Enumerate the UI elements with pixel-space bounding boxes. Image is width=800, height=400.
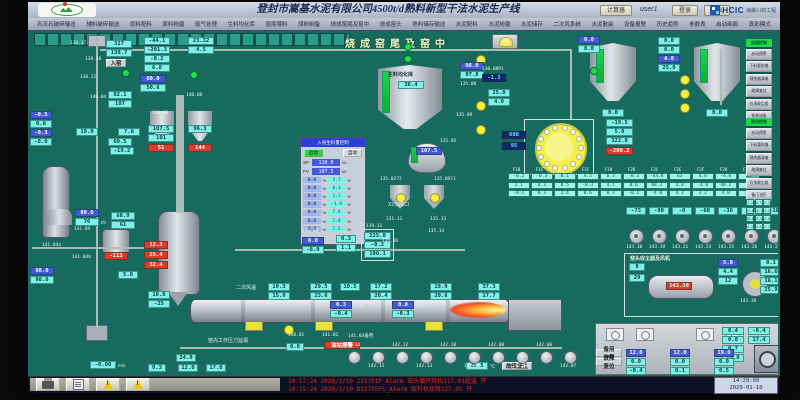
value-box: 23.6: [310, 292, 332, 300]
mini-button[interactable]: 入窑: [106, 59, 126, 67]
value-box[interactable]: 80.0: [75, 209, 99, 217]
grid-cell: -44.8: [646, 173, 668, 180]
equipment-tag: 138.21: [80, 75, 96, 80]
page-title: 烧成窑尾及窑中: [345, 35, 450, 50]
menu-item[interactable]: 烧成窑头: [380, 20, 402, 28]
equipment-tag: 142.13: [416, 364, 432, 369]
value-box: 17.7: [478, 292, 500, 300]
menu-item[interactable]: 设备报警: [624, 20, 646, 28]
unit-label: 门限: [354, 303, 363, 309]
value-box: 19.8: [148, 291, 170, 299]
weighbin-value: 107.5: [416, 147, 442, 155]
alarm-line: 10:17:24 2020/1/10 231701P_Alarm 窑头循环风机1…: [288, 378, 487, 386]
value-box: 29: [629, 274, 645, 282]
value-box: -44.1: [144, 37, 170, 45]
pipe-line: [180, 347, 562, 349]
value-box: 0.0: [714, 358, 734, 366]
pipe-line: [96, 37, 98, 329]
fan-icon[interactable]: [698, 229, 713, 244]
grid-cell: -0.3: [531, 173, 553, 180]
equipment-tag: 138.18: [85, 57, 101, 62]
value-box: 12.3: [144, 241, 168, 249]
menu-item[interactable]: 水泥粉磨: [488, 20, 510, 28]
alarm-summary-button[interactable]: [126, 378, 150, 391]
grid-header: F1B: [513, 167, 520, 172]
value-box: 107: [108, 100, 132, 108]
grid-cell: -0.1: [623, 173, 645, 180]
fan-icon[interactable]: [744, 229, 759, 244]
unit-label: t/h: [101, 220, 106, 225]
feed-panel-row: 0.0%1.1%: [301, 192, 365, 200]
run-indicator-icon: [122, 69, 130, 77]
right-table-cell: 14.0: [755, 215, 763, 222]
motor-icon[interactable]: [540, 351, 553, 364]
equipment-tag: 138.08P1: [482, 67, 504, 72]
group-button[interactable]: 故障复位: [746, 165, 772, 176]
calculator-button[interactable]: 计算器: [600, 5, 632, 16]
value-box: 19.9: [430, 283, 452, 291]
ring-nozzle-icon: [576, 136, 582, 142]
value-box: 17.0: [206, 364, 226, 372]
equipment-tag: 141.09: [74, 227, 90, 232]
value-box: 107.5: [148, 125, 174, 133]
grid-cell: -0.1: [623, 190, 645, 197]
value-box: -113: [104, 252, 128, 260]
motor-icon[interactable]: [516, 351, 529, 364]
grid-cell: 0.5: [554, 182, 576, 189]
unit-label: ℃: [490, 364, 495, 370]
group-header: 现场控制: [746, 118, 772, 126]
value-box: -0.4: [330, 310, 352, 318]
grid-cell: -4.0: [646, 190, 668, 197]
valve-icon[interactable]: [680, 89, 690, 99]
ring-nozzle-icon: [562, 125, 568, 131]
value-box: 5.0: [606, 128, 633, 136]
grid-cell: 4.2: [669, 190, 691, 197]
group-button[interactable]: 预热器清堵: [746, 153, 772, 164]
bias-value[interactable]: 0.0: [303, 193, 321, 200]
value-box: 0.4: [722, 327, 744, 335]
equipment-tag: 141.04a: [42, 243, 61, 248]
valve-icon[interactable]: [476, 101, 486, 111]
value-box: 600: [502, 131, 526, 139]
value-box: 0.3: [148, 364, 166, 372]
bias-value[interactable]: 0.0: [303, 185, 321, 192]
group-button[interactable]: 仓顶收尘组: [746, 178, 772, 189]
grid-cell: 2.4: [554, 190, 576, 197]
calciner-cone: [168, 292, 188, 306]
value-box: -0.3: [392, 310, 414, 318]
clock-time: 14:29:09: [715, 378, 777, 385]
deviation-value: 2.5: [328, 226, 346, 233]
fan-icon[interactable]: [675, 229, 690, 244]
alarm-icon-tray: [30, 378, 280, 391]
equipment-tag: 131.11: [386, 217, 402, 222]
menu-item[interactable]: 原料配料: [130, 20, 152, 28]
value-box: 0.3: [336, 235, 356, 243]
menu-item[interactable]: 熟料储存输送: [412, 20, 445, 28]
grid-cell: 0.6: [577, 190, 599, 197]
equipment-tag: 135.05: [440, 139, 456, 144]
vendor-logo-text: HCIC: [722, 6, 744, 15]
grid-cell: -0.3: [577, 182, 599, 189]
bias-value[interactable]: 0.0: [303, 177, 321, 184]
run-indicator-icon: [404, 43, 412, 51]
left-storage-tank: [42, 166, 70, 238]
ring-nozzle-icon: [536, 145, 542, 151]
menu-item[interactable]: 二次风系统: [553, 20, 581, 28]
pv-label: PV: [303, 169, 310, 174]
value-box: 23.32: [188, 37, 214, 45]
value-box: 20.6: [430, 292, 452, 300]
equipment-tag: 138.17: [70, 41, 86, 46]
right-table-cell: 17.8: [746, 207, 754, 214]
equipment-tag: 142.10: [440, 343, 456, 348]
value-box: -0.4: [748, 327, 770, 335]
grid-cell: -4.0: [715, 173, 737, 180]
value-box: 0.0: [722, 336, 744, 344]
menu-item[interactable]: 真彩模式: [749, 20, 771, 28]
menu-bar: 石灰石破碎输送辅料破碎输送原料配料原料粉磨废气处理生料均化库窑尾喂料煤粉制备烧成…: [28, 18, 780, 31]
value-box: 20.4: [370, 292, 392, 300]
grid-cell: 0.3: [531, 190, 553, 197]
company-logo-icon: [38, 3, 96, 17]
grid-cell: 4.5: [577, 173, 599, 180]
equipment-tag: 135.0272: [380, 177, 402, 182]
value-box[interactable]: 0.3: [330, 301, 352, 309]
equipment-tag: 143.23: [695, 245, 711, 250]
group-header: 远程控制: [746, 39, 772, 47]
alarm-lamp-button[interactable]: [492, 34, 518, 49]
equipment-tag: 143.18: [626, 245, 642, 250]
equipment-tag: 142.14: [344, 343, 360, 348]
equipment-tag: 140.08: [186, 93, 202, 98]
value-box: 25.0: [488, 89, 510, 97]
equipment-tag: 143.25: [718, 245, 734, 250]
login-button[interactable]: 登录: [672, 5, 698, 16]
equipment-tag: 140.04: [90, 95, 106, 100]
value-box: 17.2: [370, 283, 392, 291]
feed-bin: [46, 209, 72, 225]
kiln-support-3: [425, 321, 443, 331]
sp-unit: t/h: [342, 160, 346, 165]
vendor-logo-name: 海螺川崎工程: [746, 7, 776, 14]
value-box: 0.8: [286, 343, 304, 351]
text-label: X2沉降口: [388, 201, 409, 208]
kiln-support-2: [315, 321, 333, 331]
equipment-tag: 135.13: [430, 217, 446, 222]
right-table-header: F3: [764, 193, 769, 198]
grid-cell: 2.1: [508, 182, 530, 189]
value-box: 17.4: [748, 336, 770, 344]
value-box: 0.0: [602, 109, 624, 117]
silo-label: 生料均化库: [388, 71, 413, 78]
value-box: 25.9: [760, 286, 778, 294]
equipment-tag: 143.19: [649, 245, 665, 250]
equipment-tag: 135.08: [460, 82, 476, 87]
grid-cell: 63: [669, 173, 691, 180]
feed-panel-row: 0.0%2.0%: [301, 217, 365, 225]
menu-item[interactable]: 生料均化库: [228, 20, 256, 28]
grid-cell: 3.2: [692, 190, 714, 197]
speed-value[interactable]: 12.0: [670, 349, 690, 357]
feed-panel-row: 0.0%3.7%: [301, 176, 365, 184]
group-button[interactable]: 预热器清堵: [746, 74, 772, 85]
value-box: 10.5: [340, 283, 360, 291]
status-bar: 10:17:24 2020/1/10 231701P_Alarm 窑头循环风机1…: [28, 376, 780, 393]
value-box[interactable]: 5.0: [718, 259, 738, 267]
sp-label: SP: [303, 160, 310, 165]
menu-item[interactable]: 煤粉制备: [298, 20, 320, 28]
grid-cell: 40.2: [715, 182, 737, 189]
grid-cell: 0.1: [554, 173, 576, 180]
sp-value[interactable]: 110.0: [312, 159, 340, 166]
menu-item[interactable]: 参数表: [689, 20, 706, 28]
alarm-ack-button[interactable]: [96, 378, 120, 391]
ring-nozzle-icon: [538, 136, 544, 142]
feed-panel-row: 0.0%-1.9%: [301, 201, 365, 209]
deviation-value: -1.9: [328, 201, 346, 208]
vendor-logo: HCIC 海螺川崎工程: [710, 4, 776, 16]
value-box: 24.0: [176, 354, 196, 362]
group-button[interactable]: 启动预警: [746, 128, 772, 139]
value-box: 0.0: [626, 358, 646, 366]
equipment-tag: 142.06: [536, 343, 552, 348]
value-box: 50.6: [140, 84, 166, 92]
motor-icon[interactable]: [420, 351, 433, 364]
value-box: 98.6: [30, 276, 54, 284]
grid-header: F2E: [674, 167, 681, 172]
value-box[interactable]: -0.3: [30, 129, 52, 137]
deviation-value: 7.6: [328, 210, 346, 217]
equipment-tag: 135.36: [382, 239, 398, 244]
value-box: 4.4: [718, 268, 738, 276]
pipe-line: [176, 95, 184, 213]
right-table-cell: 4.2: [746, 223, 754, 230]
monitor-photo: 登封市嵩基水泥有限公司4500t/d熟料新型干法水泥生产线 计算器 user1 …: [0, 0, 800, 400]
print-button[interactable]: [36, 378, 60, 391]
equipment-tag: 141.02: [322, 333, 338, 338]
grid-header: F1F: [582, 167, 589, 172]
ring-nozzle-icon: [544, 129, 550, 135]
value-box: 19.3: [268, 283, 290, 291]
value-box: 32.4: [144, 261, 168, 269]
alarm-log-button[interactable]: [66, 378, 90, 391]
equipment-tag: 135.09: [456, 113, 472, 118]
hmi-screen: 登封市嵩基水泥有限公司4500t/d熟料新型干法水泥生产线 计算器 user1 …: [28, 2, 780, 390]
value-box[interactable]: 4.0: [658, 55, 680, 63]
value-box: 317: [106, 40, 132, 48]
value-box[interactable]: -0.5: [30, 111, 52, 119]
value-box: 0.6: [30, 120, 52, 128]
motor-icon[interactable]: [492, 351, 505, 364]
bias-value[interactable]: 0.0: [303, 218, 321, 225]
ring-nozzle-icon: [576, 154, 582, 160]
equipment-tag: 142.18: [302, 229, 318, 234]
grid-cell: -0.1: [508, 190, 530, 197]
equipment-tag: 143.21: [672, 245, 688, 250]
value-box: 61: [111, 221, 135, 229]
valve-icon[interactable]: [430, 193, 440, 203]
value-box: 0.0: [658, 46, 680, 54]
speed-value[interactable]: 19.0: [714, 349, 734, 357]
menu-item[interactable]: 水泥储存: [521, 20, 543, 28]
warning-icon: [103, 380, 113, 389]
fan-icon[interactable]: [767, 229, 778, 244]
grid-header: F2F: [697, 167, 704, 172]
menu-item[interactable]: 窑尾喂料: [266, 20, 288, 28]
motor-icon[interactable]: [564, 351, 577, 364]
unit-label: 门限: [416, 303, 425, 309]
grid-cell: 4.1: [600, 182, 622, 189]
pv-value: 107.5: [312, 168, 340, 175]
ring-nozzle-icon: [578, 145, 584, 151]
text-label: 二次风温: [236, 284, 256, 291]
fan-icon[interactable]: [629, 229, 644, 244]
value-box: -8.0: [302, 246, 324, 254]
value-box: 139.7: [106, 49, 132, 57]
valve-icon[interactable]: [680, 103, 690, 113]
value-box: 1.1: [336, 244, 356, 252]
menu-item[interactable]: 水泥配料: [456, 20, 478, 28]
right-table-cell: 7.2: [746, 199, 754, 206]
equipment-tag: 142.11: [464, 364, 480, 369]
menu-item[interactable]: 烧成窑尾及窑中: [331, 20, 370, 28]
value-box: 29.5: [310, 283, 332, 291]
value-box[interactable]: 0.8: [392, 301, 414, 309]
value-box: 25.0: [658, 64, 680, 72]
right-table-header: F2: [756, 193, 761, 198]
silo1-level-bar: [596, 49, 604, 83]
dust-bin: [102, 229, 130, 253]
clock-date: 2020-01-10: [715, 385, 777, 392]
menu-item[interactable]: 辅料破碎输送: [86, 20, 119, 28]
value-box: 0.5: [714, 367, 734, 375]
fan-value-box: -90: [649, 207, 669, 215]
sight-glass: [754, 345, 778, 373]
motor-icon[interactable]: [396, 351, 409, 364]
bias-value[interactable]: 0.0: [303, 210, 321, 217]
value-box: 144: [188, 144, 212, 152]
pipe-line: [100, 49, 572, 51]
value-box: 4.0: [488, 98, 510, 106]
equipment-tag: 140.06: [152, 111, 168, 116]
value-box: 100.1: [364, 250, 391, 258]
group-button[interactable]: 仓顶收尘组: [746, 99, 772, 110]
value-box: 12.0: [178, 364, 198, 372]
kiln-hood: [508, 299, 562, 331]
value-box[interactable]: 98.0: [30, 267, 54, 275]
equipment-tag: 142.15: [368, 364, 384, 369]
equipment-tag: 142.08: [488, 343, 504, 348]
equipment-tag: 142.09: [512, 364, 528, 369]
right-table-cell: 16.7: [755, 207, 763, 214]
bias-value[interactable]: 0.0: [303, 201, 321, 208]
menu-item[interactable]: 启动画面: [716, 20, 738, 28]
value-box[interactable]: 98.0: [460, 62, 484, 70]
start-button[interactable]: 启动: [304, 149, 323, 157]
right-table-cell: 1.2: [763, 223, 771, 230]
motor-icon[interactable]: [444, 351, 457, 364]
fan-icon[interactable]: [652, 229, 667, 244]
value-box: -201.3: [144, 46, 170, 54]
right-table-cell: 4.0: [755, 223, 763, 230]
grid-header: F2C: [651, 167, 658, 172]
valve-icon[interactable]: [680, 75, 690, 85]
vendor-logo-icon: [710, 5, 720, 15]
feed-panel-row: 0.0%0.3%: [301, 184, 365, 192]
grid-header: F1C: [536, 167, 543, 172]
grid-cell: 6.3: [600, 173, 622, 180]
text-label: 窑内工作压力监视: [208, 337, 248, 344]
run-indicator-icon: [190, 71, 198, 79]
window-titlebar: 登封市嵩基水泥有限公司4500t/d熟料新型干法水泥生产线 计算器 user1 …: [28, 2, 780, 19]
value-box: 92.1: [108, 91, 132, 99]
value-box: 0.1: [760, 259, 778, 267]
remote-control-group: 远程控制启动预警下料管吹堵预热器清堵故障复位仓顶收尘组伴热油泵: [746, 39, 772, 122]
menu-item[interactable]: 石灰石破碎输送: [37, 20, 76, 28]
menu-item[interactable]: 原料粉磨: [162, 20, 184, 28]
auto-button[interactable]: 自动: [343, 149, 362, 157]
menu-item[interactable]: 历史趋势: [657, 20, 679, 28]
group-button[interactable]: 启动预警: [746, 49, 772, 60]
right-table-cell: 4.2: [763, 207, 771, 214]
fan-value-box: -60: [695, 207, 715, 215]
grid-cell: 4.0: [715, 190, 737, 197]
clock: 14:29:09 2020-01-10: [714, 377, 778, 394]
run-indicator-icon: [590, 67, 598, 75]
value-box: -0.2: [144, 55, 170, 63]
grid-cell: 4.0: [692, 173, 714, 180]
value-box: 101: [148, 134, 174, 142]
value-box: 96.3: [188, 125, 212, 133]
motor-icon[interactable]: [372, 351, 385, 364]
alarm-message-list[interactable]: 10:17:24 2020/1/10 231701P_Alarm 窑头循环风机1…: [288, 378, 487, 393]
menu-item[interactable]: 废气处理: [195, 20, 217, 28]
pv-unit: t/h: [342, 169, 346, 174]
right-table-cell: 4.0: [763, 215, 771, 222]
grid-cell: -0.2: [508, 173, 530, 180]
group-button[interactable]: 下料管吹堵: [746, 140, 772, 151]
valve-icon[interactable]: [476, 125, 486, 135]
right-table-cell: 2.2: [763, 199, 771, 206]
value-box: -0.4: [626, 367, 646, 375]
ring-nozzle-icon: [552, 125, 558, 131]
fault-reset-button[interactable]: 故障复位: [596, 358, 622, 366]
group-button[interactable]: 下料管吹堵: [746, 61, 772, 72]
value-box[interactable]: 0.0: [578, 36, 600, 44]
value-box: 95: [502, 142, 526, 150]
deviation-value: 0.3: [328, 185, 346, 192]
grid-header: F2B: [628, 167, 635, 172]
motor-icon[interactable]: [348, 351, 361, 364]
speed-value[interactable]: 12.0: [626, 349, 646, 357]
grid-cell: -4.0: [692, 182, 714, 189]
kiln-flame: [450, 302, 506, 318]
value-box: 15.9: [268, 292, 290, 300]
motor-icon[interactable]: [468, 351, 481, 364]
fan-icon[interactable]: [721, 229, 736, 244]
menu-item[interactable]: 水泥散装: [591, 20, 613, 28]
equipment-tag: 141.04b: [72, 255, 91, 260]
group-button[interactable]: 故障复位: [746, 86, 772, 97]
right-table-header: F1: [747, 193, 752, 198]
panel-title: 入窑生料量控制: [301, 138, 365, 147]
value-box: 7.6: [118, 128, 140, 136]
value-box[interactable]: 0.0: [302, 237, 324, 245]
run-indicator-icon: [404, 55, 412, 63]
value-box[interactable]: 60.0: [140, 75, 166, 83]
